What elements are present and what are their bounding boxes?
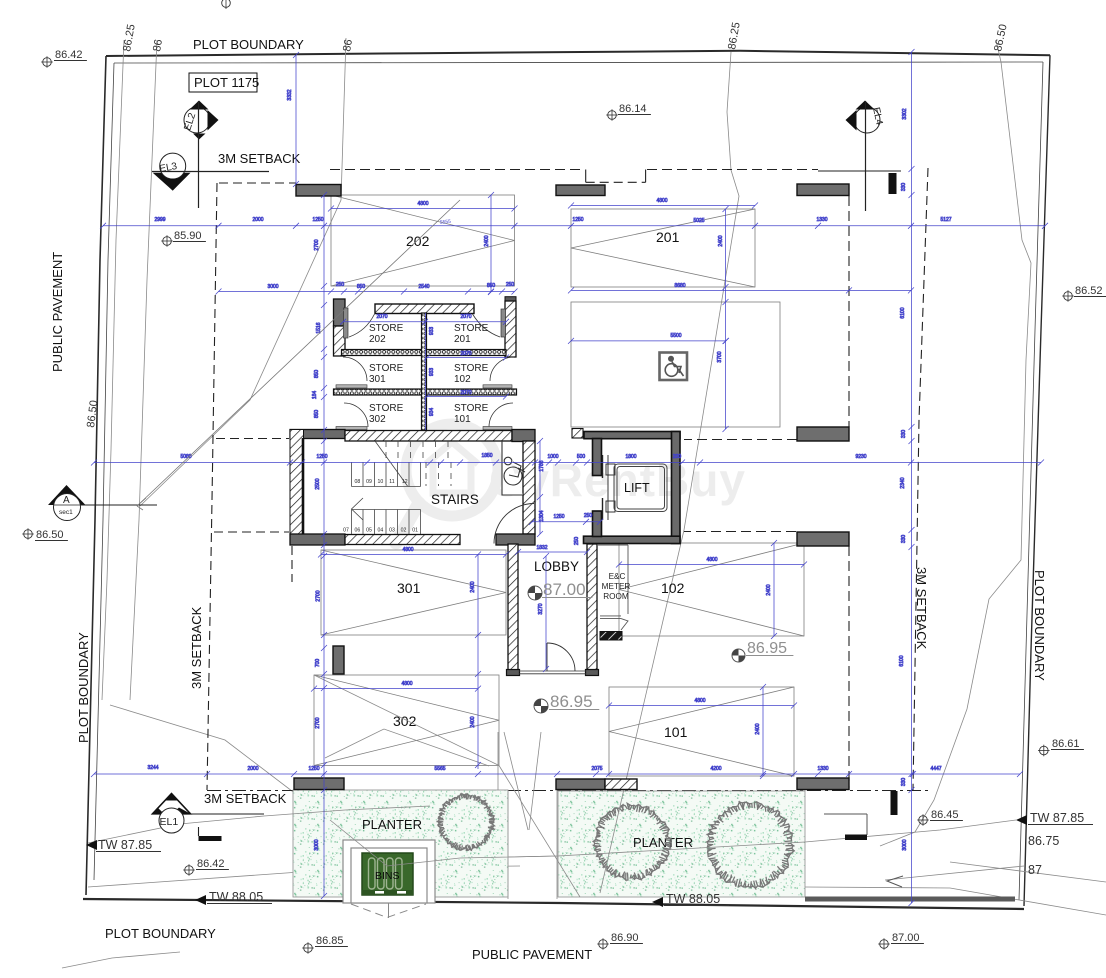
- svg-text:2070: 2070: [376, 314, 387, 320]
- svg-text:87.00: 87.00: [543, 580, 586, 599]
- svg-text:4800: 4800: [401, 681, 412, 687]
- svg-text:330: 330: [901, 430, 907, 439]
- svg-text:86.95: 86.95: [747, 640, 787, 657]
- svg-text:3M SETBACK: 3M SETBACK: [204, 791, 287, 806]
- svg-text:4800: 4800: [656, 198, 667, 204]
- svg-text:86.75: 86.75: [1028, 834, 1059, 848]
- svg-text:PLANTER: PLANTER: [362, 817, 422, 832]
- svg-text:1304: 1304: [539, 510, 545, 521]
- svg-text:86.42: 86.42: [197, 858, 225, 870]
- svg-text:934: 934: [429, 408, 435, 417]
- svg-text:2500: 2500: [315, 478, 321, 489]
- svg-text:ROOM: ROOM: [603, 592, 629, 601]
- svg-text:09: 09: [366, 479, 372, 485]
- svg-text:BINS: BINS: [375, 870, 400, 882]
- svg-text:102: 102: [454, 374, 471, 385]
- svg-text:PLOT BOUNDARY: PLOT BOUNDARY: [1032, 570, 1047, 681]
- svg-text:A: A: [63, 495, 70, 506]
- svg-text:1330: 1330: [817, 766, 828, 772]
- svg-text:1850: 1850: [481, 453, 492, 459]
- svg-text:201: 201: [656, 229, 680, 245]
- svg-text:1832: 1832: [536, 545, 547, 551]
- svg-text:4200: 4200: [710, 766, 721, 772]
- svg-text:2999: 2999: [154, 217, 165, 223]
- svg-text:3M SETBACK: 3M SETBACK: [218, 151, 301, 166]
- svg-text:86.42: 86.42: [55, 49, 83, 61]
- svg-text:2700: 2700: [316, 590, 322, 601]
- svg-text:86.52: 86.52: [1075, 285, 1103, 297]
- svg-text:302: 302: [369, 414, 386, 425]
- svg-text:85.90: 85.90: [174, 230, 202, 242]
- svg-text:250: 250: [336, 282, 345, 288]
- svg-text:2400: 2400: [766, 584, 772, 595]
- svg-text:87.00: 87.00: [892, 932, 920, 944]
- svg-text:EL1: EL1: [160, 816, 179, 828]
- svg-text:5555: 5555: [440, 219, 452, 226]
- svg-text:4800: 4800: [706, 557, 717, 563]
- svg-text:TW 87.85: TW 87.85: [1030, 811, 1084, 825]
- svg-text:1250: 1250: [316, 454, 327, 460]
- svg-text:2400: 2400: [470, 716, 476, 727]
- svg-text:2400: 2400: [755, 723, 761, 734]
- svg-text:2400: 2400: [484, 235, 490, 246]
- svg-text:1250: 1250: [312, 217, 323, 223]
- svg-text:200: 200: [673, 454, 682, 460]
- svg-text:3000: 3000: [314, 839, 320, 850]
- svg-text:201: 201: [454, 334, 471, 345]
- svg-text:202: 202: [406, 233, 430, 249]
- svg-text:101: 101: [664, 724, 688, 740]
- svg-text:184: 184: [312, 391, 318, 400]
- svg-text:2070: 2070: [460, 390, 471, 396]
- svg-text:10: 10: [378, 479, 384, 485]
- svg-text:250: 250: [584, 513, 593, 519]
- svg-text:330: 330: [901, 535, 907, 544]
- svg-text:301: 301: [369, 374, 386, 385]
- svg-text:330: 330: [901, 183, 907, 192]
- svg-text:850: 850: [357, 284, 366, 290]
- svg-text:86: 86: [341, 38, 355, 52]
- svg-text:2340: 2340: [900, 477, 906, 488]
- svg-text:E&C: E&C: [609, 572, 626, 581]
- svg-text:12: 12: [402, 479, 408, 485]
- svg-text:1330: 1330: [816, 217, 827, 223]
- svg-text:5565: 5565: [434, 766, 445, 772]
- svg-text:3244: 3244: [147, 765, 158, 771]
- svg-text:1786: 1786: [539, 460, 545, 471]
- svg-text:5500: 5500: [670, 333, 681, 339]
- svg-text:STORE: STORE: [454, 363, 489, 374]
- svg-text:102: 102: [661, 580, 685, 596]
- svg-text:5025: 5025: [693, 218, 704, 224]
- svg-text:2700: 2700: [315, 717, 321, 728]
- svg-text:4447: 4447: [930, 766, 941, 772]
- svg-text:3270: 3270: [538, 603, 544, 614]
- svg-text:1250: 1250: [553, 514, 564, 520]
- svg-text:3000: 3000: [267, 284, 278, 290]
- svg-text:9230: 9230: [855, 454, 866, 460]
- svg-text:PLOT BOUNDARY: PLOT BOUNDARY: [76, 632, 91, 743]
- svg-text:4800: 4800: [402, 547, 413, 553]
- svg-text:2070: 2070: [460, 351, 471, 357]
- svg-text:STORE: STORE: [454, 403, 489, 414]
- svg-text:08: 08: [355, 479, 361, 485]
- svg-text:PLOT 1175: PLOT 1175: [194, 75, 259, 90]
- svg-text:2540: 2540: [418, 284, 429, 290]
- svg-text:4800: 4800: [417, 201, 428, 207]
- svg-text:STORE: STORE: [369, 363, 404, 374]
- svg-text:2400: 2400: [718, 235, 724, 246]
- svg-text:330: 330: [901, 778, 907, 787]
- svg-text:202: 202: [369, 334, 386, 345]
- svg-text:850: 850: [314, 370, 320, 379]
- svg-text:933: 933: [429, 327, 435, 336]
- svg-text:1250: 1250: [308, 766, 319, 772]
- svg-text:500: 500: [577, 454, 586, 460]
- svg-text:05: 05: [366, 528, 372, 534]
- svg-text:1000: 1000: [547, 454, 558, 460]
- svg-text:TW 88.05: TW 88.05: [209, 890, 263, 904]
- svg-text:8680: 8680: [674, 283, 685, 289]
- svg-text:STORE: STORE: [369, 323, 404, 334]
- svg-text:02: 02: [401, 528, 407, 534]
- svg-text:850: 850: [314, 410, 320, 419]
- svg-text:86.90: 86.90: [611, 932, 639, 944]
- svg-text:LIFT: LIFT: [624, 481, 650, 495]
- svg-text:101: 101: [454, 414, 471, 425]
- svg-text:LOBBY: LOBBY: [534, 559, 579, 574]
- svg-text:11: 11: [389, 479, 394, 485]
- svg-text:4800: 4800: [694, 698, 705, 704]
- svg-text:86.95: 86.95: [550, 692, 593, 711]
- svg-text:6100: 6100: [899, 655, 905, 666]
- svg-text:PUBLIC PAVEMENT: PUBLIC PAVEMENT: [472, 947, 592, 962]
- svg-text:86.14: 86.14: [619, 103, 647, 115]
- svg-text:2000: 2000: [252, 217, 263, 223]
- svg-text:TW 87.85: TW 87.85: [98, 838, 152, 852]
- svg-text:04: 04: [378, 528, 384, 534]
- svg-text:PLOT BOUNDARY: PLOT BOUNDARY: [193, 37, 304, 52]
- svg-text:03: 03: [389, 528, 395, 534]
- svg-text:2700: 2700: [314, 239, 320, 250]
- svg-text:301: 301: [397, 580, 421, 596]
- svg-text:sec1: sec1: [59, 509, 73, 516]
- svg-text:250: 250: [574, 537, 580, 546]
- svg-text:6100: 6100: [900, 307, 906, 318]
- svg-text:87: 87: [1028, 863, 1042, 877]
- svg-text:06: 06: [355, 528, 361, 534]
- svg-text:1800: 1800: [625, 454, 636, 460]
- svg-text:PUBLIC PAVEMENT: PUBLIC PAVEMENT: [50, 252, 65, 372]
- svg-text:2070: 2070: [460, 314, 471, 320]
- svg-text:86.61: 86.61: [1052, 738, 1080, 750]
- svg-text:2400: 2400: [470, 581, 476, 592]
- svg-text:5127: 5127: [940, 217, 951, 223]
- svg-text:86: 86: [151, 38, 165, 52]
- svg-text:2000: 2000: [247, 766, 258, 772]
- svg-text:STORE: STORE: [369, 403, 404, 414]
- svg-text:2075: 2075: [591, 766, 602, 772]
- svg-text:1250: 1250: [572, 217, 583, 223]
- svg-text:700: 700: [315, 659, 321, 668]
- svg-text:86.45: 86.45: [931, 809, 959, 821]
- svg-text:3332: 3332: [287, 89, 293, 100]
- svg-text:07: 07: [343, 528, 349, 534]
- svg-text:86.50: 86.50: [36, 529, 64, 541]
- svg-text:3000: 3000: [902, 839, 908, 850]
- svg-text:3700: 3700: [717, 351, 723, 362]
- svg-text:3M SETBACK: 3M SETBACK: [189, 606, 204, 689]
- svg-text:250: 250: [506, 282, 515, 288]
- svg-text:METER: METER: [602, 582, 631, 591]
- svg-text:86.85: 86.85: [316, 935, 344, 947]
- svg-text:3302: 3302: [902, 108, 908, 119]
- svg-text:TW 88.05: TW 88.05: [666, 892, 720, 906]
- svg-text:933: 933: [429, 368, 435, 377]
- svg-text:STAIRS: STAIRS: [431, 492, 479, 507]
- svg-text:STORE: STORE: [454, 323, 489, 334]
- svg-text:01: 01: [412, 528, 418, 534]
- svg-text:3M SETBACK: 3M SETBACK: [914, 567, 929, 650]
- svg-text:PLOT BOUNDARY: PLOT BOUNDARY: [105, 926, 216, 941]
